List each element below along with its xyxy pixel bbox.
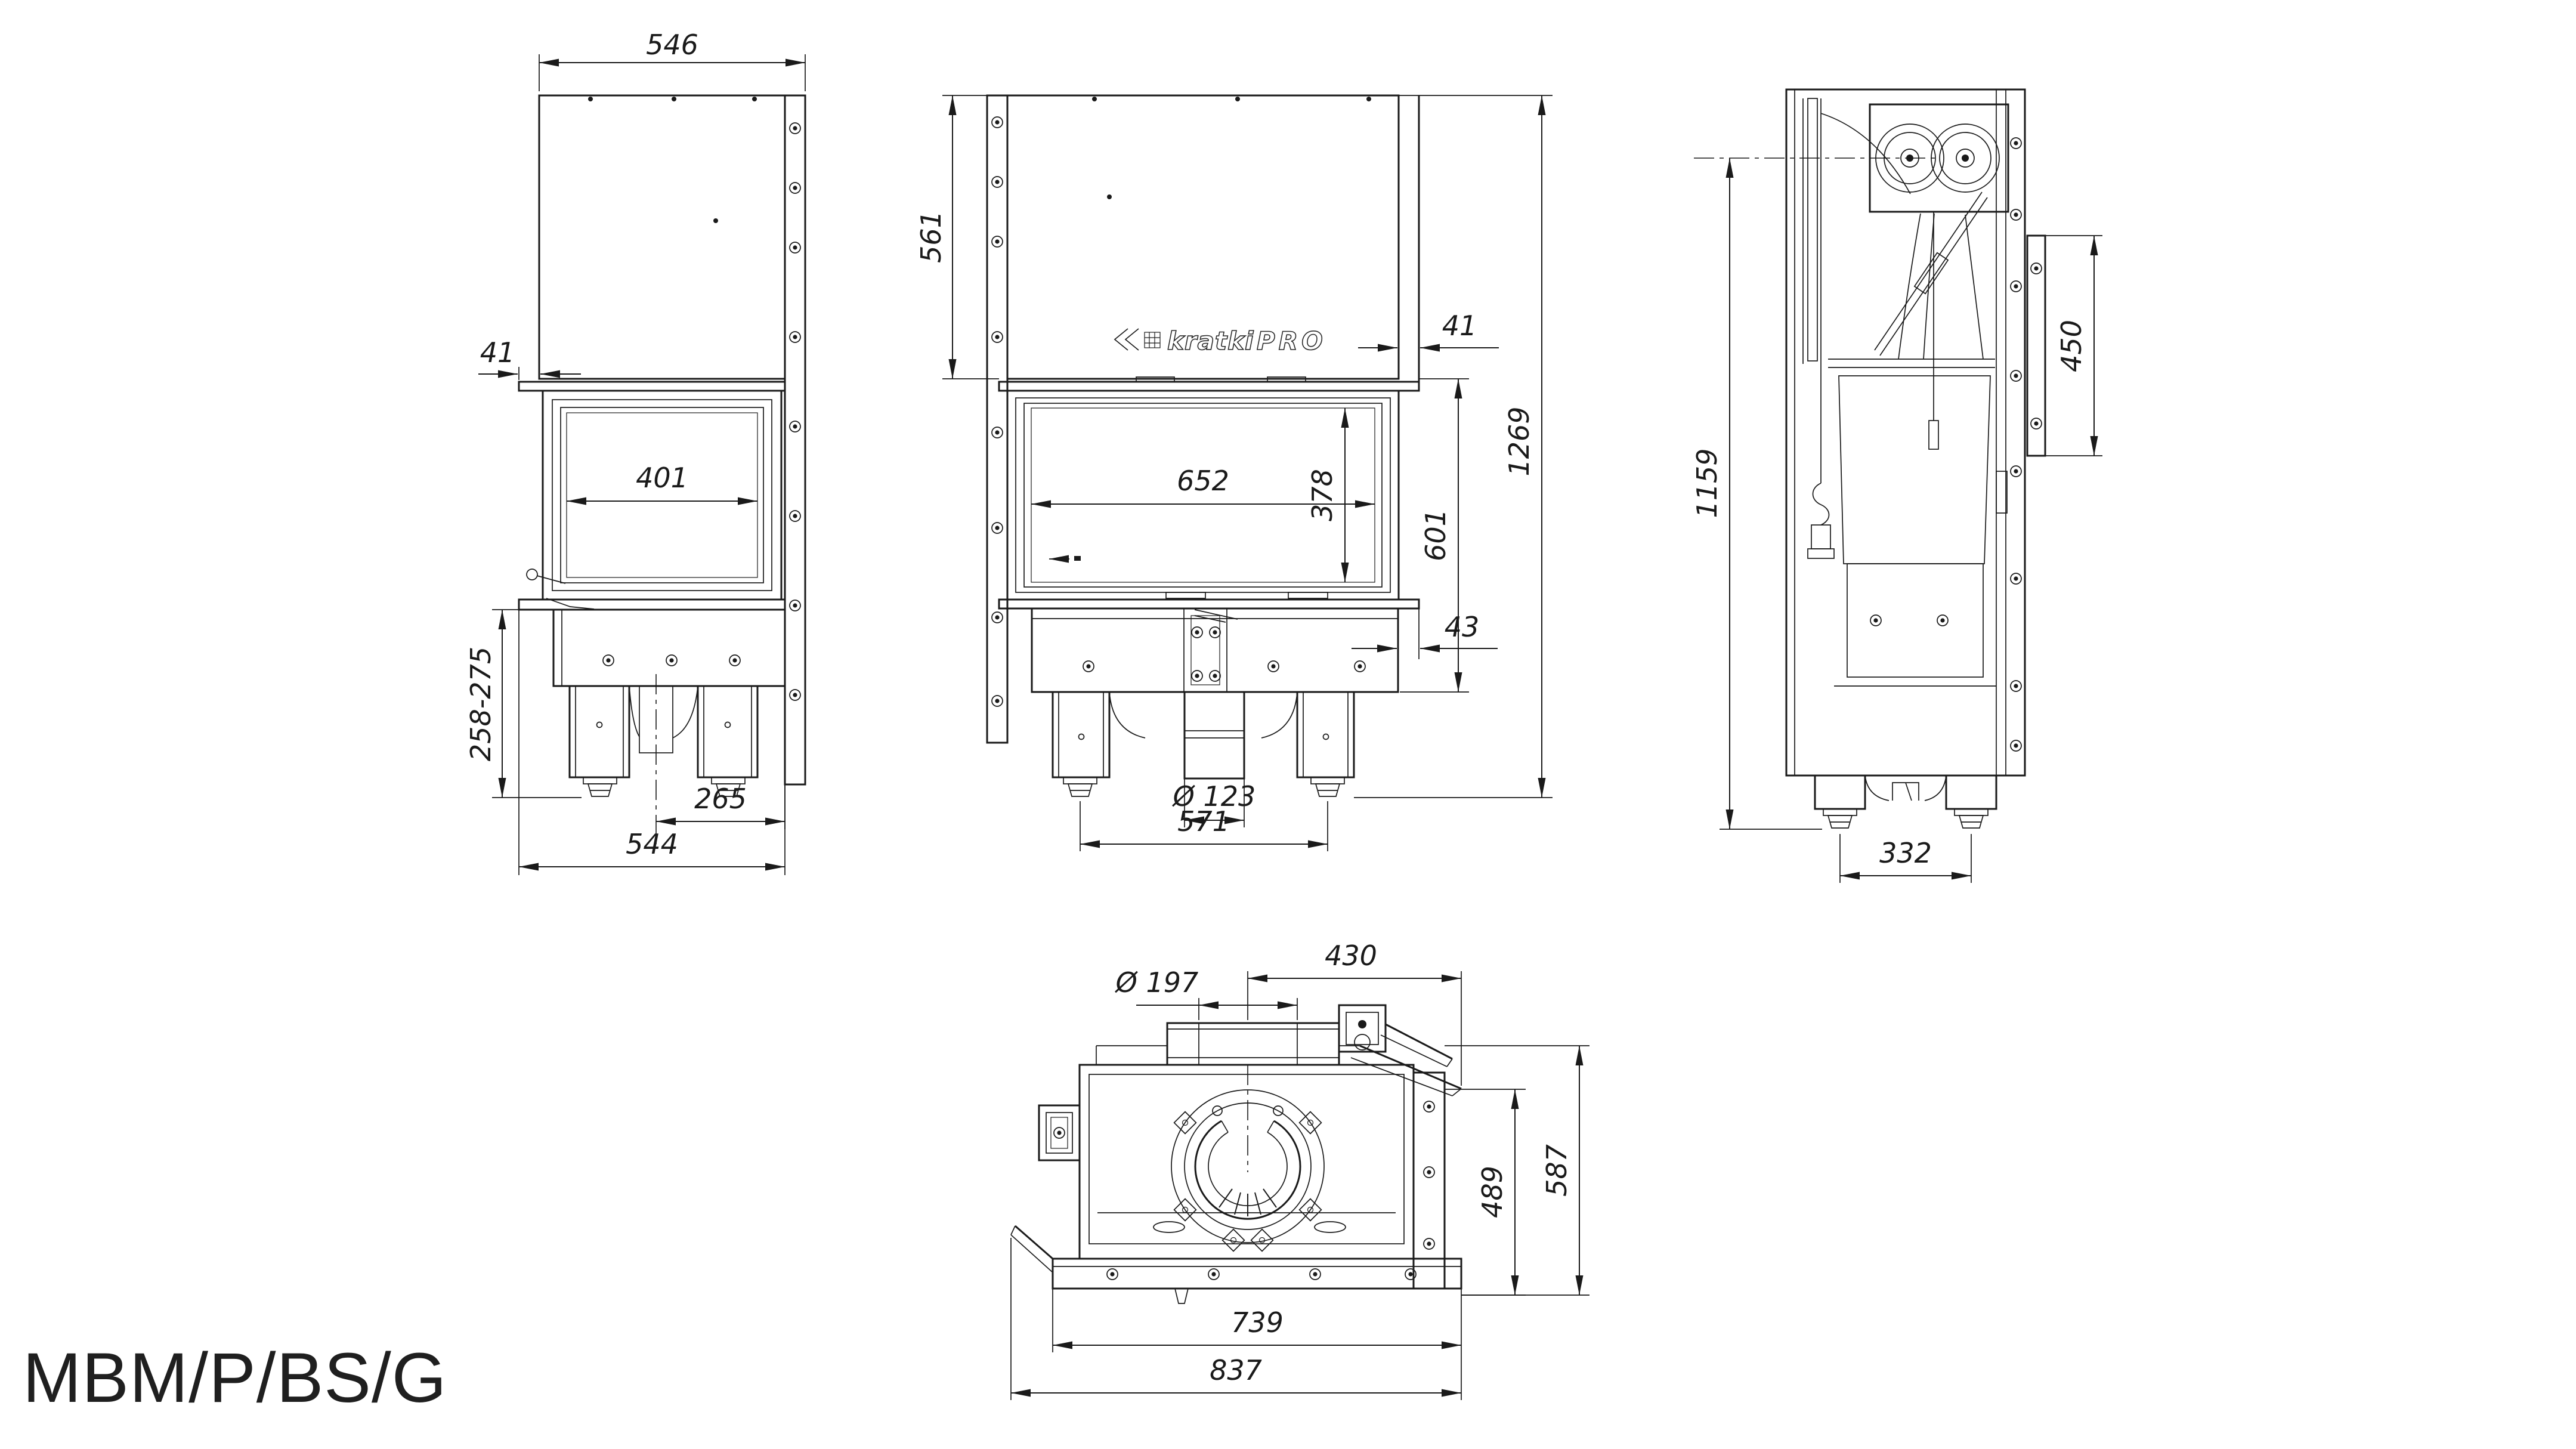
- side-door-frame: [543, 391, 781, 600]
- dim-top-body-depth: 489: [1476, 1166, 1508, 1218]
- dim-front-feet-spacing: 571: [1177, 805, 1230, 838]
- front-base: [1032, 608, 1398, 692]
- dim-section-feet-spacing: 332: [1879, 837, 1932, 869]
- dim-top-body-width: 739: [1231, 1306, 1284, 1339]
- brand-name: kratki: [1167, 326, 1254, 356]
- dim-front-glass-width: 652: [1177, 465, 1229, 497]
- kratki-logo: kratki PRO: [1115, 326, 1326, 356]
- dim-front-base-inset: 43: [1445, 611, 1480, 643]
- pulley-right: [1931, 124, 1999, 192]
- adjustable-foot: [1063, 777, 1097, 796]
- dim-front-firebox-height: 601: [1420, 509, 1452, 561]
- door-handle: [527, 569, 537, 580]
- pulley-box: [1870, 104, 2008, 212]
- side-hood-panel: [539, 95, 785, 379]
- counterweight-hook: [1813, 483, 1829, 525]
- model-label: MBM/P/BS/G: [23, 1339, 447, 1417]
- brand-suffix: PRO: [1257, 326, 1326, 356]
- view-side: 546 41 401 258-275 265 544: [465, 29, 805, 875]
- dim-side-glass-width: 401: [636, 462, 688, 494]
- adjustable-foot: [1823, 809, 1857, 828]
- technical-drawing: 546 41 401 258-275 265 544: [0, 0, 2576, 1449]
- view-front: kratki PRO: [915, 95, 1553, 851]
- section-door-edge: [1808, 98, 1817, 361]
- side-glass: [567, 413, 757, 577]
- dim-top-flue-to-right: 430: [1325, 940, 1377, 972]
- side-rear-wall: [785, 95, 805, 784]
- dim-side-front-offset: 41: [480, 336, 515, 369]
- dim-section-height-to-axis: 1159: [1691, 448, 1723, 518]
- adjustable-foot: [1955, 809, 1988, 828]
- dim-front-side-offset: 41: [1442, 310, 1477, 342]
- adjustable-foot: [1311, 777, 1344, 796]
- dim-section-rear-panel-height: 450: [2055, 320, 2088, 372]
- dim-side-total-depth: 544: [626, 828, 678, 860]
- dim-front-total-height: 1269: [1503, 406, 1535, 476]
- dim-top-flue-diameter: Ø 197: [1115, 966, 1199, 999]
- front-left-strip: [987, 95, 1007, 743]
- dim-side-base-height-range: 258-275: [465, 647, 497, 761]
- dim-top-total-width: 837: [1210, 1354, 1262, 1386]
- dim-front-glass-height: 378: [1306, 469, 1338, 521]
- view-top: 430 Ø 197 489 587 739 837: [1011, 940, 1589, 1400]
- dim-front-hood-height: 561: [915, 211, 947, 263]
- side-base: [553, 610, 785, 686]
- section-body: [1786, 89, 2025, 776]
- side-latch: [1039, 1105, 1080, 1160]
- damper-control: [1339, 1005, 1452, 1067]
- dim-side-hood-depth: 546: [646, 29, 698, 61]
- dim-side-center-to-rear: 265: [694, 783, 747, 815]
- adjustable-foot: [583, 777, 617, 796]
- air-inlet-pipe: [1185, 692, 1244, 778]
- firebox-section: [1839, 376, 1990, 564]
- dim-top-total-depth: 587: [1541, 1144, 1573, 1197]
- turnbuckle: [1915, 253, 1948, 294]
- view-section: 1159 450 332: [1691, 89, 2102, 883]
- kratki-logo-icon: [1115, 329, 1160, 350]
